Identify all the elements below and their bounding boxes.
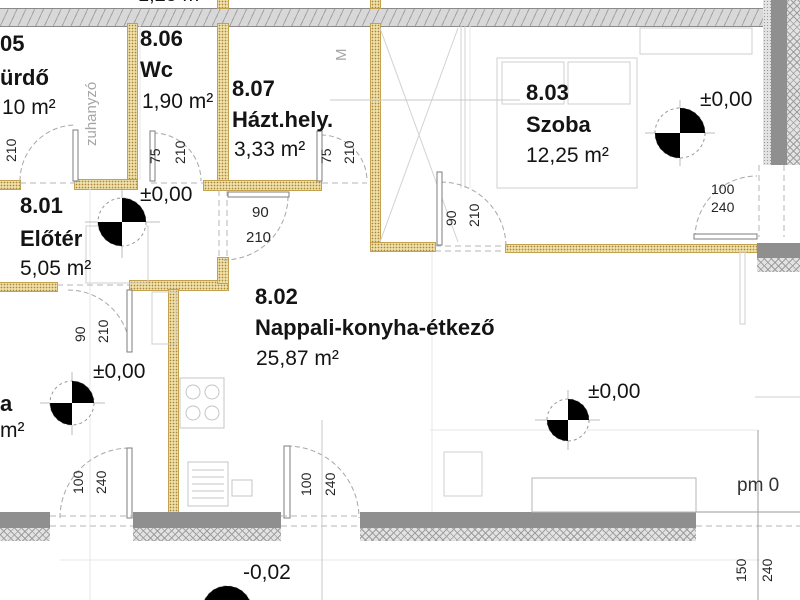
room-area-802: 25,87 m² [256, 347, 339, 371]
room-number-805-partial: 05 [0, 31, 24, 57]
dim-balcony-height: 240 [711, 199, 734, 215]
dim-window-height: 240 [759, 540, 775, 582]
room-area-801: 5,05 m² [20, 257, 91, 281]
room-number-803: 8.03 [526, 80, 569, 106]
room-area-lower-partial: m² [0, 419, 25, 443]
room-area-803: 12,25 m² [526, 144, 609, 168]
dimension-lines [322, 100, 758, 600]
dim-wc-width: 75 [147, 126, 163, 164]
room-name-lower-partial: a [0, 391, 12, 417]
room-number-801: 8.01 [20, 193, 63, 219]
room-number-807: 8.07 [232, 76, 275, 102]
shaft-label: M [333, 33, 350, 61]
room-name-803: Szoba [526, 112, 591, 138]
dim-801-802-width: 90 [252, 204, 269, 221]
dim-hazt-width: 75 [318, 126, 334, 164]
room-name-802: Nappali-konyha-étkező [255, 315, 495, 341]
room-area-806: 1,90 m² [142, 90, 213, 114]
room-area-807: 3,33 m² [234, 138, 305, 162]
dim-door2-width: 100 [298, 454, 314, 496]
room-number-806: 8.06 [140, 26, 183, 52]
benchmark-markers [40, 100, 715, 600]
plan-linework [0, 0, 800, 600]
level-label-living: ±0,00 [588, 380, 640, 404]
dim-door2-height: 240 [322, 454, 338, 496]
dim-szoba-height: 210 [95, 301, 111, 343]
dim-balcony-width: 100 [711, 181, 734, 197]
room-name-806: Wc [140, 57, 173, 83]
dim-window-width: 150 [733, 540, 749, 582]
level-label-lower-room: ±0,00 [93, 360, 145, 384]
dim-803-width: 90 [443, 188, 459, 226]
parapet-label: pm 0 [737, 475, 779, 497]
dim-door1-width: 100 [70, 452, 86, 494]
level-label-outside: -0,02 [243, 561, 291, 585]
dim-szoba-width: 90 [72, 304, 88, 342]
dim-door1-height: 240 [93, 452, 109, 494]
dim-wc-height: 210 [172, 122, 188, 164]
level-label-szoba: ±0,00 [700, 88, 752, 112]
dim-801-802-height: 210 [246, 229, 271, 246]
dim-803-height: 210 [466, 185, 482, 227]
room-area-805-partial: 10 m² [2, 96, 56, 120]
shower-label: zuhanyzó [83, 58, 100, 146]
dim-hazt-height: 210 [341, 122, 357, 164]
room-number-802: 8.02 [255, 284, 298, 310]
benchmark-icon [202, 586, 252, 600]
floor-plan: 1,25 m² 8.06 Wc 1,90 m² 8.07 Házt.hely. … [0, 0, 800, 600]
room-name-805-partial: ürdő [0, 65, 49, 91]
room-name-801: Előtér [20, 226, 82, 252]
level-label-entry: ±0,00 [140, 183, 192, 207]
dim-furdo-height: 210 [3, 120, 19, 162]
top-cut-area-label: 1,25 m² [138, 0, 206, 7]
